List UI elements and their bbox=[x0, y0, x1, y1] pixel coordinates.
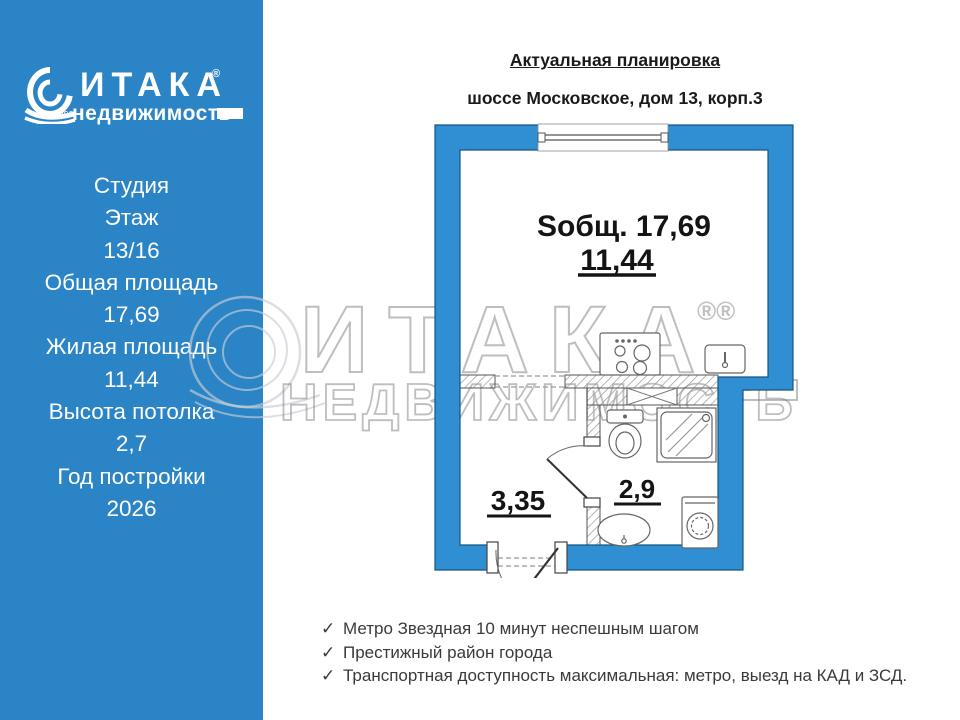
itaka-logo: ИТАКА ® недвижимость 1993 bbox=[24, 62, 254, 137]
stove bbox=[600, 333, 660, 375]
stat-year-value: 2026 bbox=[0, 493, 263, 525]
bathroom-sink bbox=[598, 514, 650, 546]
apartment-stats: Студия Этаж 13/16 Общая площадь 17,69 Жи… bbox=[0, 170, 263, 525]
feature-text: Метро Звездная 10 минут неспешным шагом bbox=[343, 619, 699, 638]
stat-floor-value: 13/16 bbox=[0, 235, 263, 267]
stat-total-area-label: Общая площадь bbox=[0, 267, 263, 299]
feature-text: Престижный район города bbox=[343, 643, 552, 662]
page-title: Актуальная планировка bbox=[280, 50, 950, 71]
label-living-area: 11,44 bbox=[580, 244, 654, 277]
check-icon: ✓ bbox=[321, 664, 343, 688]
logo-year: 1993 bbox=[54, 110, 74, 119]
address-subtitle: шоссе Московское, дом 13, корп.3 bbox=[280, 88, 950, 109]
feature-item: ✓Метро Звездная 10 минут неспешным шагом bbox=[321, 617, 941, 641]
stat-type: Студия bbox=[0, 170, 263, 202]
feature-item: ✓Транспортная доступность максимальная: … bbox=[321, 664, 941, 688]
logo-subtitle-text: недвижимость bbox=[72, 102, 232, 126]
shower bbox=[657, 408, 716, 462]
stat-total-area-value: 17,69 bbox=[0, 299, 263, 331]
logo-underline-bar bbox=[217, 108, 243, 119]
logo-brand-text: ИТАКА bbox=[80, 70, 228, 100]
stat-living-area-value: 11,44 bbox=[0, 364, 263, 396]
feature-text: Транспортная доступность максимальная: м… bbox=[343, 666, 907, 685]
stat-year-label: Год постройки bbox=[0, 461, 263, 493]
passage-opening bbox=[495, 376, 565, 387]
kitchen-sink bbox=[705, 345, 745, 373]
sidebar: ИТАКА ® недвижимость 1993 Студия Этаж 13… bbox=[0, 0, 263, 720]
label-bath-area: 2,9 bbox=[619, 474, 655, 504]
stat-ceiling-label: Высота потолка bbox=[0, 396, 263, 428]
entrance-door bbox=[487, 542, 567, 578]
label-hall-area: 3,35 bbox=[491, 485, 546, 516]
check-icon: ✓ bbox=[321, 641, 343, 665]
stat-floor-label: Этаж bbox=[0, 202, 263, 234]
label-total-area: Sобщ. 17,69 bbox=[537, 210, 711, 243]
listing-slide: ИТАКА ® недвижимость 1993 Студия Этаж 13… bbox=[0, 0, 960, 720]
bathroom-door bbox=[547, 437, 600, 507]
stat-living-area-label: Жилая площадь bbox=[0, 331, 263, 363]
washing-machine bbox=[682, 497, 718, 548]
check-icon: ✓ bbox=[321, 617, 343, 641]
floor-plan: Sобщ. 17,69 11,44 3,35 2,9 bbox=[420, 118, 800, 578]
feature-list: ✓Метро Звездная 10 минут неспешным шагом… bbox=[321, 617, 941, 688]
logo-registered-mark: ® bbox=[212, 68, 220, 80]
stat-ceiling-value: 2,7 bbox=[0, 428, 263, 460]
toilet bbox=[607, 410, 643, 458]
window bbox=[538, 124, 668, 151]
feature-item: ✓Престижный район города bbox=[321, 641, 941, 665]
